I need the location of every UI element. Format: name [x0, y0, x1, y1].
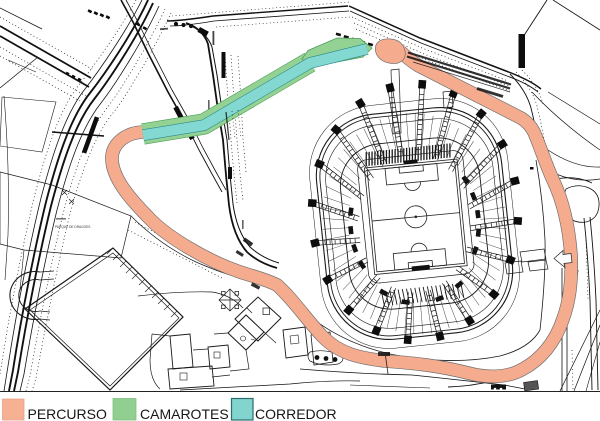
svg-text:CAMAROTES: CAMAROTES — [140, 406, 229, 421]
svg-text:CORREDOR: CORREDOR — [255, 406, 337, 421]
svg-text:PERCURSO: PERCURSO — [28, 406, 107, 421]
svg-text:PARQUE DE DRAGOES: PARQUE DE DRAGOES — [55, 225, 90, 229]
